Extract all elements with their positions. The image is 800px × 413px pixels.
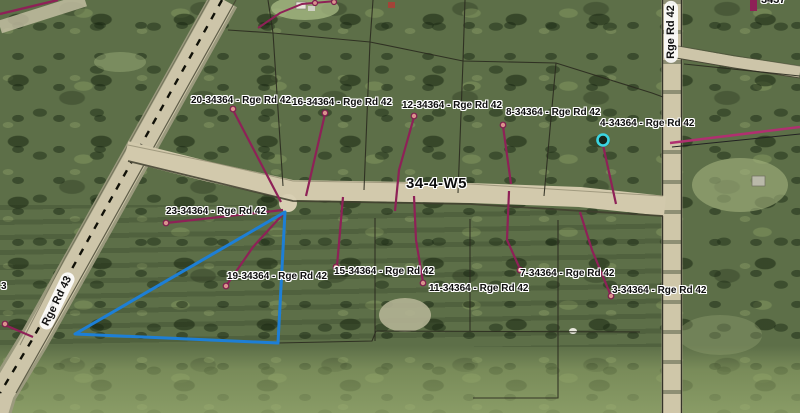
partial-label-top-right: 3437 — [761, 0, 785, 6]
partial-label-left-edge: 3 — [1, 281, 7, 293]
parcel-label-15-34364: 15-34364 - Rge Rd 42 — [334, 266, 434, 278]
road-topright — [676, 46, 800, 78]
selected-point-marker[interactable] — [598, 135, 609, 146]
pipeline-line — [670, 127, 800, 147]
cutoff-marker — [750, 0, 757, 11]
aerial-map-canvas[interactable]: 20-34364 - Rge Rd 42 16-34364 - Rge Rd 4… — [0, 0, 800, 413]
parcel-label-7-34364: 7-34364 - Rge Rd 42 — [520, 268, 615, 280]
road-label-rge-rd-42: Rge Rd 42 — [664, 1, 678, 63]
parcel-label-12-34364: 12-34364 - Rge Rd 42 — [402, 100, 502, 112]
parcel-label-11-34364: 11-34364 - Rge Rd 42 — [429, 283, 529, 295]
township-label: 34-4-W5 — [406, 178, 467, 190]
parcel-label-16-34364: 16-34364 - Rge Rd 42 — [292, 97, 392, 109]
parcel-label-3-34364: 3-34364 - Rge Rd 42 — [612, 285, 707, 297]
topleft-trail — [0, 0, 85, 27]
map-overlay-graphics — [0, 0, 800, 413]
parcel-label-20-34364: 20-34364 - Rge Rd 42 — [191, 95, 291, 107]
parcel-label-23-34364: 23-34364 - Rge Rd 42 — [166, 206, 266, 218]
parcel-label-4-34364: 4-34364 - Rge Rd 42 — [600, 118, 695, 130]
parcel-label-8-34364: 8-34364 - Rge Rd 42 — [506, 107, 601, 119]
buildings — [296, 2, 765, 186]
parcel-label-19-34364: 19-34364 - Rge Rd 42 — [227, 271, 327, 283]
